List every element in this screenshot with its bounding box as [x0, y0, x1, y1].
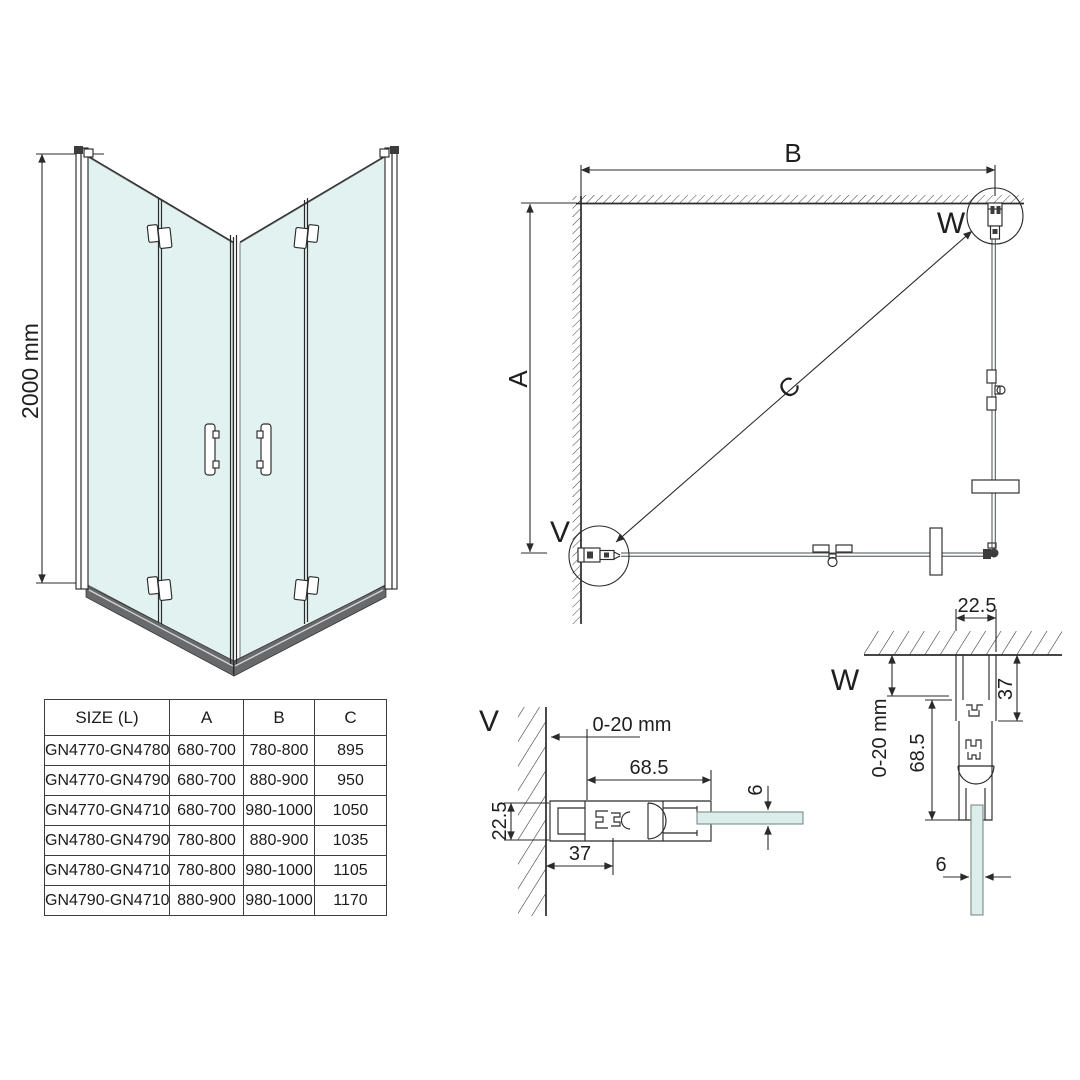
dim-c-cell: 1105 [315, 856, 387, 886]
hinge-plan-icon [813, 545, 852, 567]
detail-w-section: W 22.5 37 [831, 595, 1062, 915]
door-bottom-plan [621, 528, 999, 575]
glass-thickness-label: 6 [745, 784, 767, 795]
glass-section [971, 805, 983, 915]
dim-b-cell: 980-1000 [244, 856, 315, 886]
wall-profile-section-small [988, 203, 1002, 239]
wall-profile-cross-section [550, 801, 711, 841]
dim-b-cell: 880-900 [244, 766, 315, 796]
dim-c-cell: 1035 [315, 826, 387, 856]
col-header-c: C [315, 700, 387, 736]
dim-c-label: C [772, 370, 806, 405]
dim-b-cell: 780-800 [244, 736, 315, 766]
dim-a-cell: 680-700 [170, 736, 244, 766]
table-row: GN4790-GN4710 880-900 980-1000 1170 [45, 886, 387, 916]
wall-top [576, 195, 1024, 204]
col-header-size: SIZE (L) [45, 700, 170, 736]
wall-hatch [518, 707, 546, 916]
dimension-profile-length: 68.5 [587, 757, 711, 800]
dim-a-cell: 680-700 [170, 796, 244, 826]
dim-c-cell: 1170 [315, 886, 387, 916]
dim-a-label: A [503, 370, 533, 388]
model-cell: GN4780-GN4710 [45, 856, 170, 886]
glass-thickness-label: 6 [935, 854, 946, 876]
corner-pivot-icon [983, 543, 999, 559]
wall-profile-section-small [578, 548, 620, 562]
profile-depth-label: 22.5 [489, 802, 511, 841]
detail-v-label: V [479, 705, 499, 738]
model-cell: GN4790-GN4710 [45, 886, 170, 916]
wall-hatch [864, 631, 1062, 655]
dim-b-cell: 880-900 [244, 826, 315, 856]
dim-b-cell: 980-1000 [244, 796, 315, 826]
detail-w-label: W [831, 664, 860, 697]
door-handle-plan-icon [972, 480, 1019, 493]
wall-profile-cross-section [956, 655, 996, 820]
adjust-range-label: 0-20 mm [593, 714, 672, 736]
detail-v-ref-label: V [550, 516, 570, 549]
table-row: GN4770-GN4790 680-700 880-900 950 [45, 766, 387, 796]
dimension-fixed-part: 37 [546, 838, 613, 875]
drawing-svg: 2000 mm [0, 0, 1080, 1080]
profile-length-label: 68.5 [630, 757, 669, 779]
col-header-a: A [170, 700, 244, 736]
model-cell: GN4770-GN4790 [45, 766, 170, 796]
table-header-row: SIZE (L) A B C [45, 700, 387, 736]
dimension-b: B [581, 138, 995, 198]
plan-view: B A C [503, 138, 1024, 624]
door-handle-plan-icon [930, 528, 942, 575]
dim-c-cell: 895 [315, 736, 387, 766]
hinge-plan-icon [987, 370, 1005, 410]
model-cell: GN4770-GN4710 [45, 796, 170, 826]
dimension-profile-length: 68.5 [907, 700, 967, 820]
detail-w-ref-label: W [937, 207, 966, 240]
dim-a-cell: 780-800 [170, 826, 244, 856]
dim-b-label: B [784, 138, 801, 168]
dim-c-cell: 1050 [315, 796, 387, 826]
dim-b-cell: 980-1000 [244, 886, 315, 916]
fixed-part-label: 37 [995, 678, 1017, 700]
col-header-b: B [244, 700, 315, 736]
dimension-fixed-part: 37 [995, 655, 1023, 721]
front-view-3d: 2000 mm [17, 146, 399, 676]
size-table: SIZE (L) A B C GN4770-GN4780 680-700 780… [44, 699, 387, 916]
model-cell: GN4780-GN4790 [45, 826, 170, 856]
adjust-range-label: 0-20 mm [869, 699, 891, 778]
profile-length-label: 68.5 [907, 734, 929, 773]
detail-v-section: V 0-20 mm 68.5 [479, 705, 803, 916]
dim-a-cell: 680-700 [170, 766, 244, 796]
table-row: GN4770-GN4780 680-700 780-800 895 [45, 736, 387, 766]
table-row: GN4780-GN4710 780-800 980-1000 1105 [45, 856, 387, 886]
table-row: GN4780-GN4790 780-800 880-900 1035 [45, 826, 387, 856]
height-dim-label: 2000 mm [17, 323, 43, 419]
dim-a-cell: 880-900 [170, 886, 244, 916]
table-row: GN4770-GN4710 680-700 980-1000 1050 [45, 796, 387, 826]
dimension-c: C [616, 231, 972, 542]
profile-depth-label: 22.5 [958, 595, 997, 617]
detail-circle-v: V [550, 516, 629, 586]
technical-drawing-sheet: 2000 mm [0, 0, 1080, 1080]
glass-section [697, 812, 803, 824]
dimension-a: A [503, 203, 577, 553]
door-right-plan [972, 239, 1019, 551]
dim-a-cell: 780-800 [170, 856, 244, 886]
model-cell: GN4770-GN4780 [45, 736, 170, 766]
dim-c-cell: 950 [315, 766, 387, 796]
fixed-part-label: 37 [569, 843, 591, 865]
